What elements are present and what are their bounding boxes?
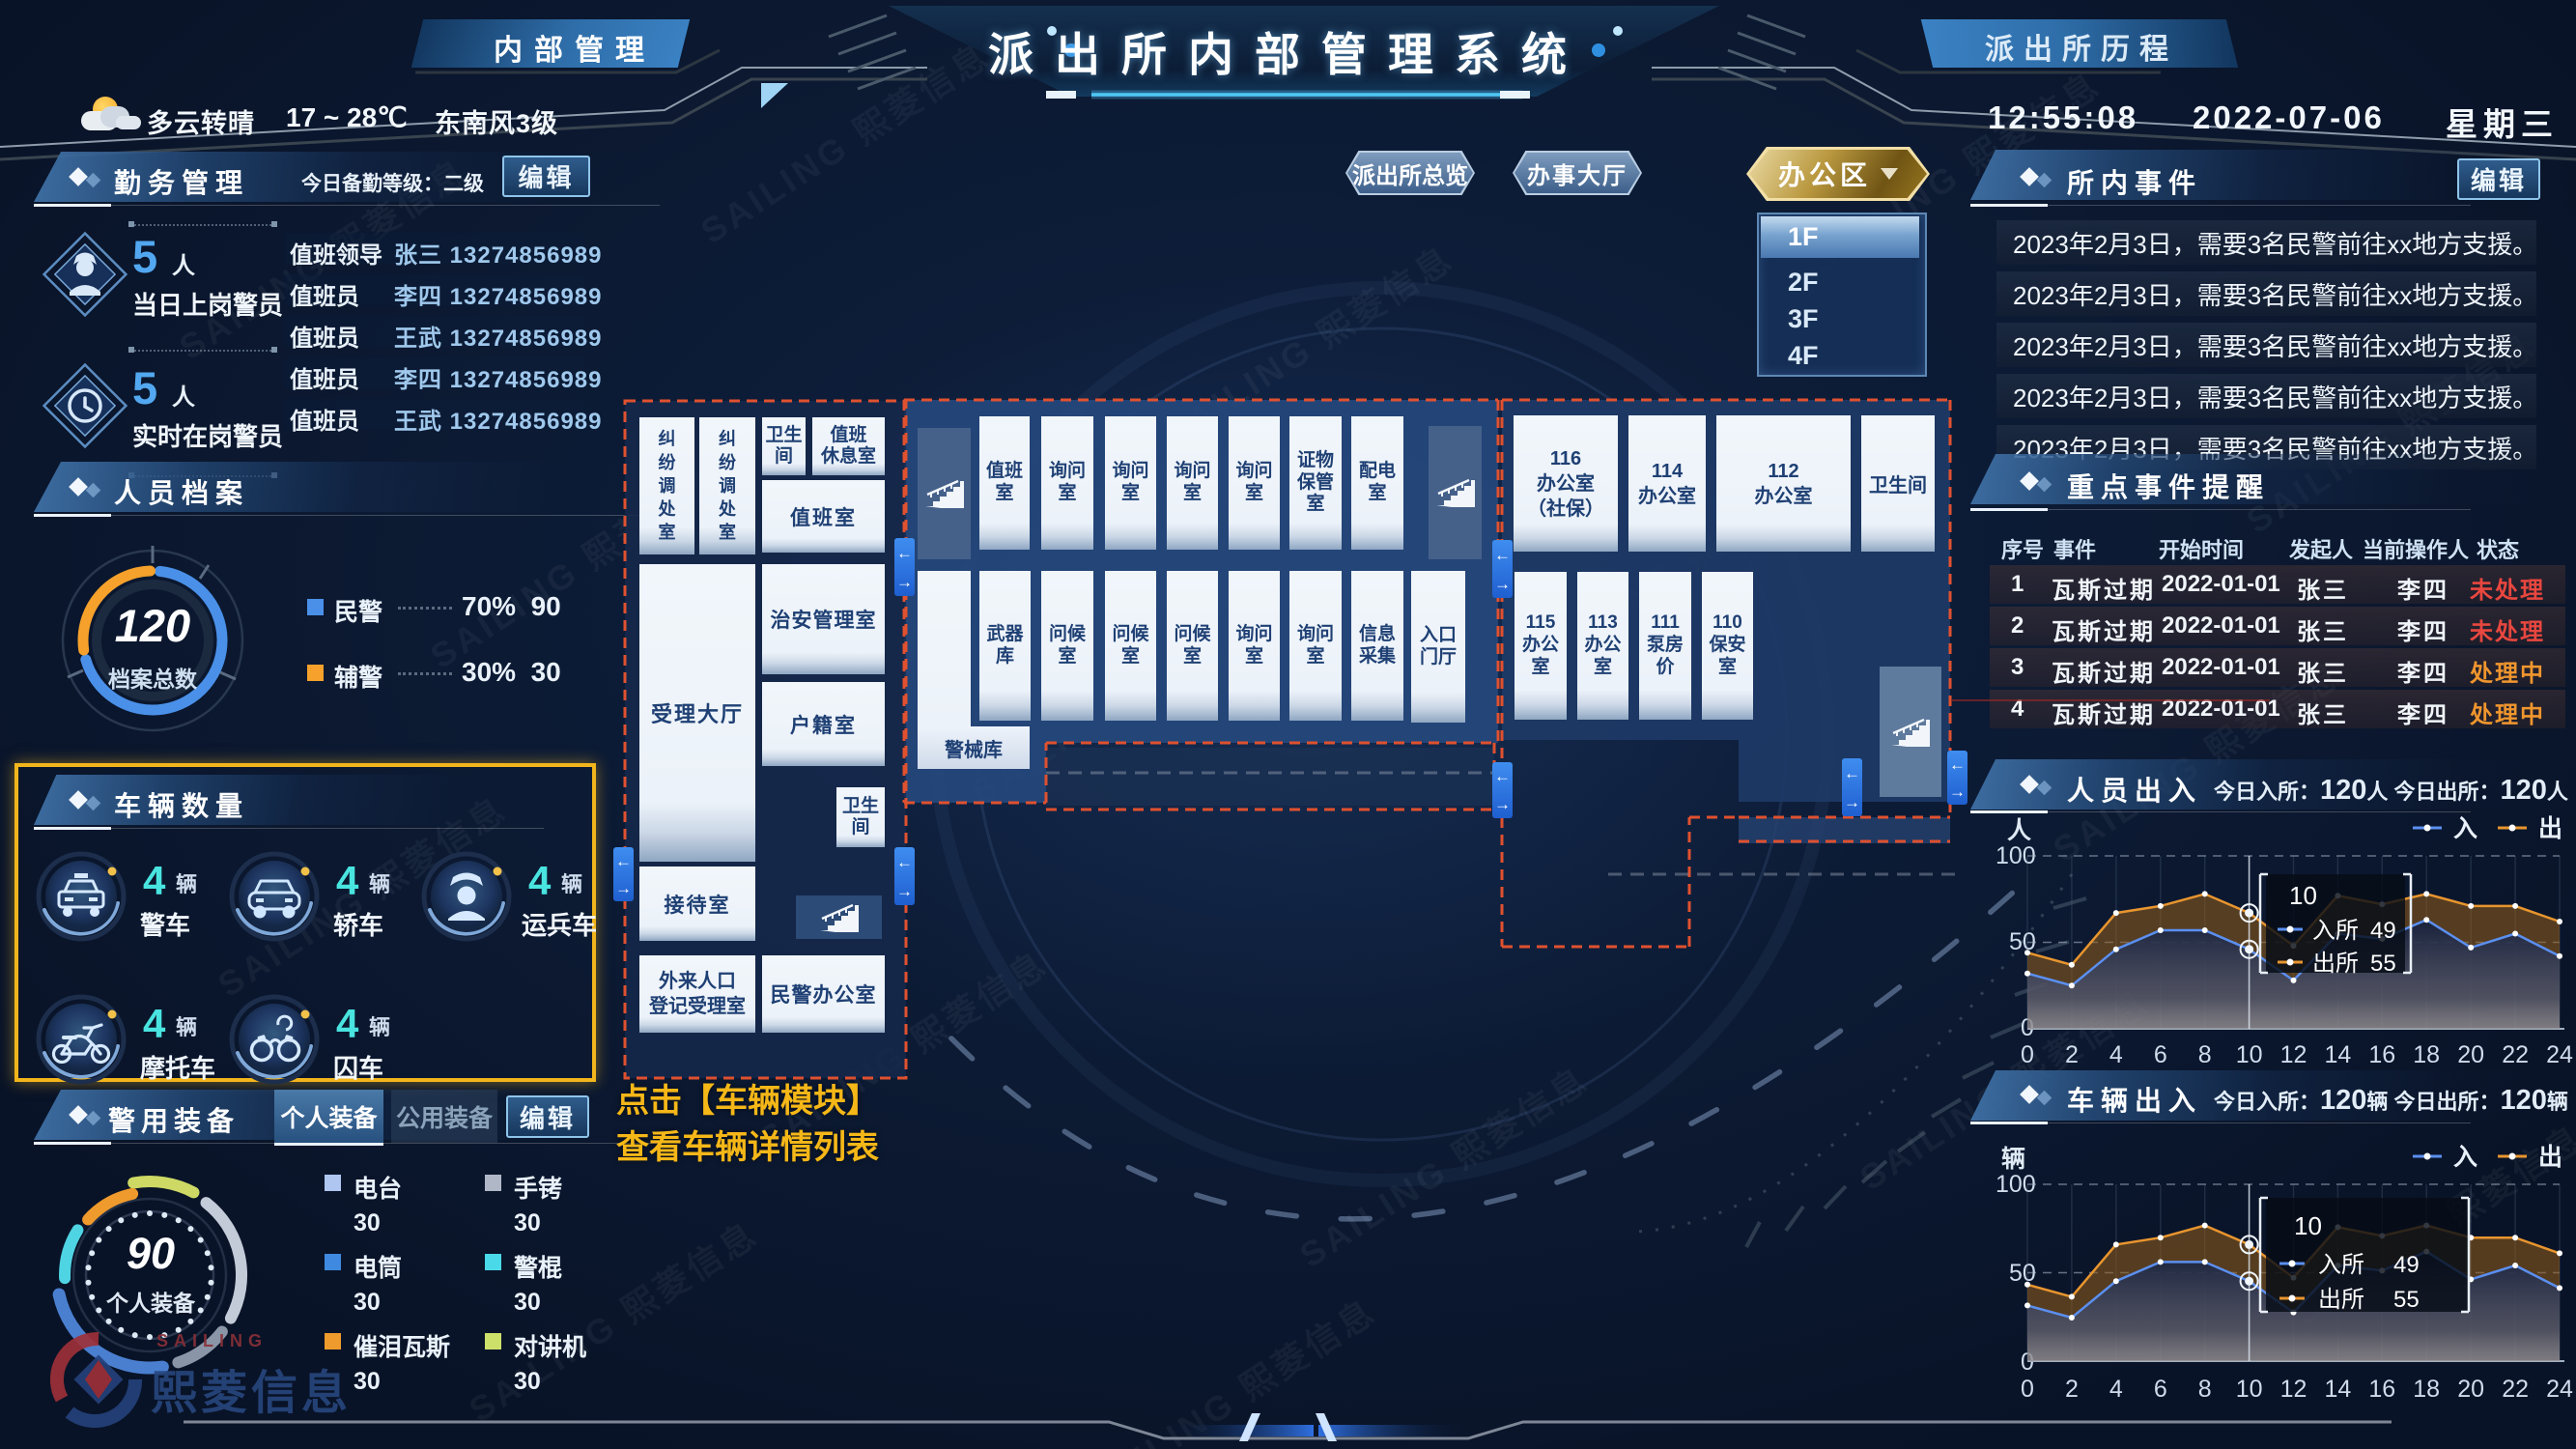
svg-text:4: 4 bbox=[2109, 1376, 2123, 1403]
svg-text:6: 6 bbox=[2154, 1041, 2167, 1068]
svg-text:2: 2 bbox=[2065, 1376, 2079, 1403]
svg-text:8: 8 bbox=[2198, 1376, 2212, 1403]
svg-text:10: 10 bbox=[2294, 1211, 2322, 1240]
svg-text:入所: 入所 bbox=[2312, 918, 2359, 944]
svg-text:0: 0 bbox=[2021, 1376, 2034, 1403]
svg-text:出所: 出所 bbox=[2312, 951, 2359, 977]
svg-text:24: 24 bbox=[2546, 1041, 2573, 1068]
svg-text:55: 55 bbox=[2370, 951, 2396, 977]
svg-text:10: 10 bbox=[2289, 881, 2317, 910]
svg-text:18: 18 bbox=[2413, 1376, 2440, 1403]
svg-text:人: 人 bbox=[2007, 817, 2031, 844]
svg-text:14: 14 bbox=[2324, 1041, 2351, 1068]
svg-text:12: 12 bbox=[2280, 1041, 2307, 1068]
svg-text:55: 55 bbox=[2393, 1287, 2420, 1313]
svg-text:16: 16 bbox=[2368, 1376, 2395, 1403]
svg-text:入所: 入所 bbox=[2318, 1252, 2364, 1278]
svg-text:20: 20 bbox=[2457, 1041, 2484, 1068]
svg-text:10: 10 bbox=[2236, 1376, 2263, 1403]
svg-text:12: 12 bbox=[2280, 1376, 2307, 1403]
svg-text:入: 入 bbox=[2453, 1144, 2477, 1171]
svg-text:10: 10 bbox=[2236, 1041, 2263, 1068]
svg-text:2: 2 bbox=[2065, 1041, 2079, 1068]
svg-text:4: 4 bbox=[2109, 1041, 2123, 1068]
svg-text:22: 22 bbox=[2502, 1041, 2529, 1068]
svg-text:20: 20 bbox=[2457, 1376, 2484, 1403]
svg-text:出: 出 bbox=[2538, 1144, 2562, 1171]
svg-text:8: 8 bbox=[2198, 1041, 2212, 1068]
svg-text:出: 出 bbox=[2538, 815, 2562, 842]
svg-text:0: 0 bbox=[2021, 1041, 2034, 1068]
svg-text:49: 49 bbox=[2393, 1252, 2420, 1278]
svg-text:出所: 出所 bbox=[2318, 1287, 2364, 1313]
svg-text:14: 14 bbox=[2324, 1376, 2351, 1403]
svg-text:24: 24 bbox=[2546, 1376, 2573, 1403]
svg-text:16: 16 bbox=[2368, 1041, 2395, 1068]
svg-text:6: 6 bbox=[2154, 1376, 2167, 1403]
svg-text:18: 18 bbox=[2413, 1041, 2440, 1068]
svg-text:49: 49 bbox=[2370, 918, 2396, 944]
svg-text:22: 22 bbox=[2502, 1376, 2529, 1403]
svg-text:入: 入 bbox=[2453, 815, 2477, 842]
svg-text:辆: 辆 bbox=[2001, 1146, 2025, 1173]
